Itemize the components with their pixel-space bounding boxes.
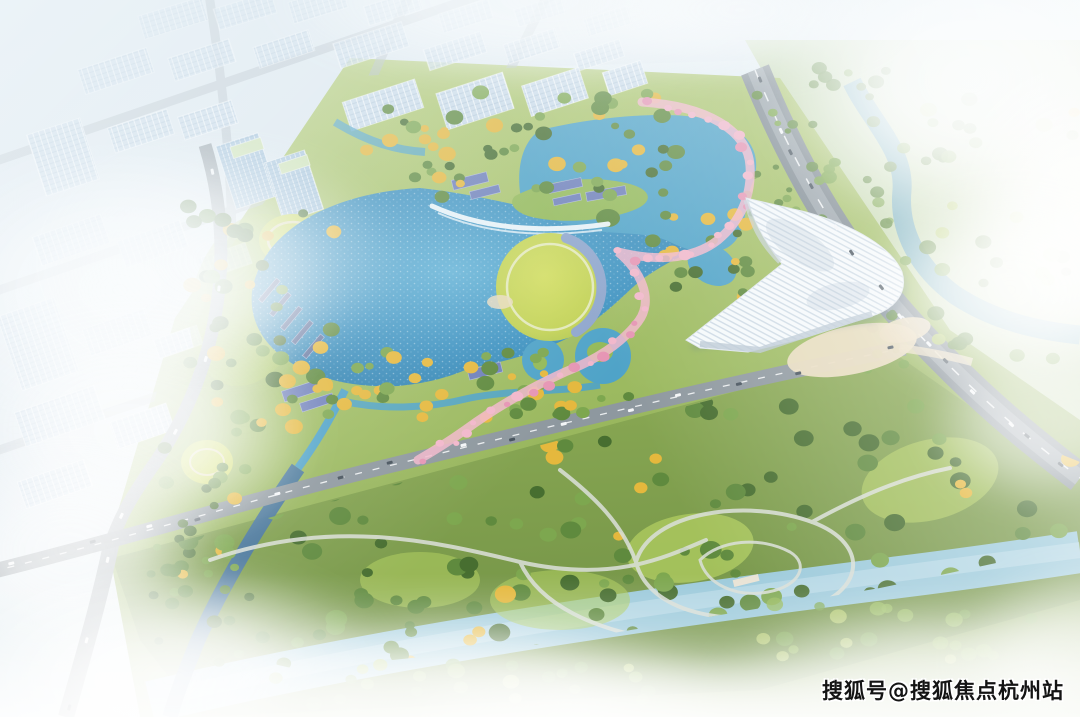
tree [416,596,431,608]
tree [787,523,797,531]
tree [508,373,516,380]
tree [794,430,814,446]
tree [591,177,603,187]
tree [483,145,492,153]
blossom-tree [626,331,635,338]
tree [511,123,522,132]
tree [726,484,746,500]
blossom-tree [486,407,495,415]
tree [623,575,635,585]
pond-island-2 [667,145,685,159]
tree [632,144,645,155]
tree [419,134,431,144]
blossom-tree [743,171,753,180]
tree [654,575,674,591]
tree [428,142,439,151]
blossom-tree [688,112,696,118]
tree [495,586,516,603]
tree [499,148,509,156]
tree [594,91,612,105]
tree [700,405,718,420]
blossom-tree [419,459,426,465]
blossom-tree [588,361,594,366]
tree [739,256,753,267]
tree [719,596,734,609]
tree [623,392,634,401]
tree [354,588,368,599]
blossom-tree [557,372,564,377]
tree [560,522,581,539]
tree [477,376,495,391]
blossom-tree [631,321,637,326]
tree [435,389,448,400]
tree [1015,527,1031,540]
tree [382,104,394,114]
tree [530,486,545,498]
tree [624,129,635,138]
blossom-tree [597,352,610,362]
tree [386,351,402,364]
tree [329,507,351,525]
tree [510,518,524,529]
tree [539,181,554,193]
tree [843,421,861,436]
tree [567,381,582,393]
blossom-tree [704,116,712,122]
tree [650,454,662,464]
tree [520,397,536,410]
tree [741,266,755,278]
blossom-tree [630,257,641,266]
blossom-tree [734,131,745,140]
tree [535,126,552,140]
blossom-tree [504,402,510,407]
tree [660,211,671,220]
tree [417,412,429,422]
tree [486,516,497,525]
tree [360,145,373,156]
tree [794,585,810,598]
tree [481,352,491,360]
tree [659,160,672,171]
blossom-tree [674,109,682,115]
tree [600,588,617,602]
tree [546,450,564,465]
tree [652,473,669,487]
tree [351,386,362,395]
blossom-tree [568,363,580,373]
tree [326,395,338,405]
tree [540,528,557,542]
tree [783,195,792,202]
tree [857,455,878,472]
blossom-tree [738,193,747,201]
tree [438,147,455,161]
blossom-tree [642,97,652,105]
tree [720,550,733,561]
tree [560,575,579,591]
tree [646,167,658,177]
tree [421,125,429,132]
blossom-tree [543,381,555,391]
tree [767,598,784,612]
tree [351,363,364,374]
tree [764,471,778,482]
tree [446,110,464,124]
tree [728,264,740,274]
tree [617,160,628,169]
watermark-text: 搜狐号@搜狐焦点杭州站 [822,675,1064,705]
tree [557,439,573,452]
tree [456,180,465,188]
blossom-tree [529,389,538,397]
blossom-tree [608,337,617,344]
blossom-tree [470,420,476,425]
blossom-tree [718,121,730,131]
tree [535,112,545,121]
tree [1050,524,1068,539]
tree [481,361,498,375]
tree [701,213,716,225]
tree [576,407,590,418]
blossom-tree [462,429,472,438]
tree [573,162,586,173]
aerial-rendering-scene: 搜狐号@搜狐焦点杭州站 [0,0,1080,717]
tree [589,608,605,621]
tree [432,172,447,184]
tree [510,144,520,152]
blossom-tree [655,255,663,262]
tree [486,118,503,132]
tree [523,123,533,131]
tree [688,266,703,278]
tree [420,401,434,412]
tree [390,595,402,605]
tree [409,172,421,182]
blossom-tree [735,142,747,152]
tree [323,409,335,419]
tree [558,93,572,104]
blossom-tree [708,242,714,247]
tree [723,408,738,420]
tree [786,187,792,192]
blossom-tree [747,160,754,166]
tree [814,602,825,611]
tree [658,145,669,154]
tree [730,569,741,578]
tree [599,579,609,588]
tree [317,378,333,391]
blossom-tree [724,222,734,230]
blossom-tree [714,232,722,238]
tree [422,358,433,367]
tree [445,162,455,170]
tree [447,512,463,525]
tree [634,482,647,493]
tree [382,134,398,147]
tree [362,568,373,577]
tree [302,543,322,560]
tree [409,373,422,383]
blossom-tree [679,250,692,261]
tree [510,408,523,419]
tree [379,382,394,395]
tree [845,524,865,541]
tree [406,121,421,134]
tree [645,234,661,247]
tree [597,395,606,402]
tree [464,361,479,373]
tree [449,475,467,490]
tree [674,267,687,278]
cloud-city-mid [40,140,400,380]
blossom-tree [613,247,621,254]
tree [603,189,618,201]
tree [375,538,387,548]
tree [423,161,433,169]
blossom-tree [436,440,445,447]
blossom-tree [453,441,459,446]
tree [548,157,566,171]
blossom-tree [664,105,672,111]
tree [670,282,682,292]
blossom-tree [630,269,640,277]
tree [337,398,352,410]
tree [779,398,799,414]
blossom-tree [642,306,649,311]
lakeside-beach [487,295,513,309]
tree [733,230,742,238]
tree [731,258,740,265]
tree [538,348,549,357]
tree [710,499,721,508]
blossom-tree [511,391,523,401]
tree [882,430,900,445]
tree [460,557,479,572]
tree [357,516,368,525]
tree [658,188,668,196]
tree [365,363,373,370]
blossom-tree [643,254,653,262]
tree [871,553,889,568]
tree [859,434,880,451]
tree [598,436,612,447]
tree [564,400,577,410]
blossom-tree [634,292,644,300]
tree [502,348,515,359]
tree [437,129,450,139]
tree [884,514,905,531]
tree [611,123,619,130]
tree [773,165,779,170]
tree [435,191,450,203]
